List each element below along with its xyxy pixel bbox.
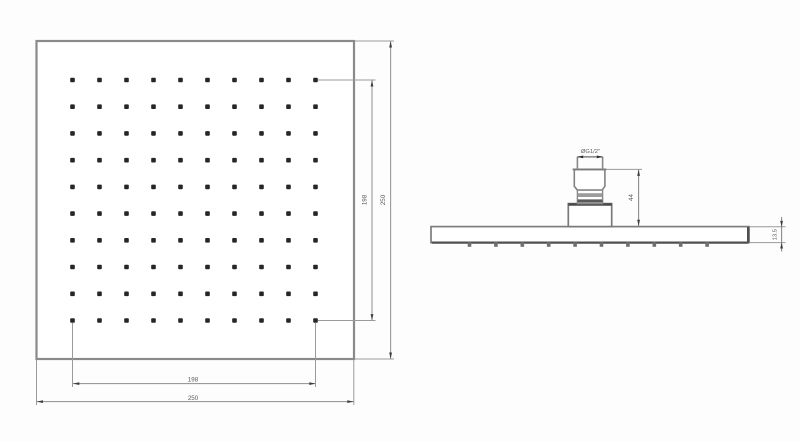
svg-text:250: 250	[188, 395, 199, 402]
svg-text:13.5: 13.5	[772, 229, 778, 240]
svg-text:198: 198	[362, 194, 369, 205]
svg-text:250: 250	[380, 194, 387, 205]
svg-text:ØG1/2″: ØG1/2″	[581, 149, 600, 155]
svg-text:44: 44	[628, 194, 635, 201]
svg-text:198: 198	[188, 376, 199, 383]
